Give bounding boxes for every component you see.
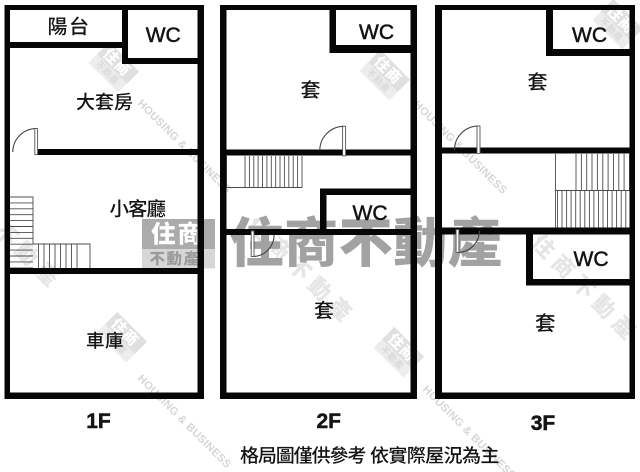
svg-text:WC: WC [359, 21, 394, 44]
svg-text:WC: WC [574, 248, 609, 271]
svg-text:WC: WC [572, 24, 607, 47]
svg-text:1F: 1F [86, 410, 111, 433]
svg-text:3F: 3F [531, 412, 556, 435]
svg-text:2F: 2F [316, 410, 341, 433]
svg-text:WC: WC [146, 24, 181, 47]
svg-text:WC: WC [353, 202, 388, 225]
